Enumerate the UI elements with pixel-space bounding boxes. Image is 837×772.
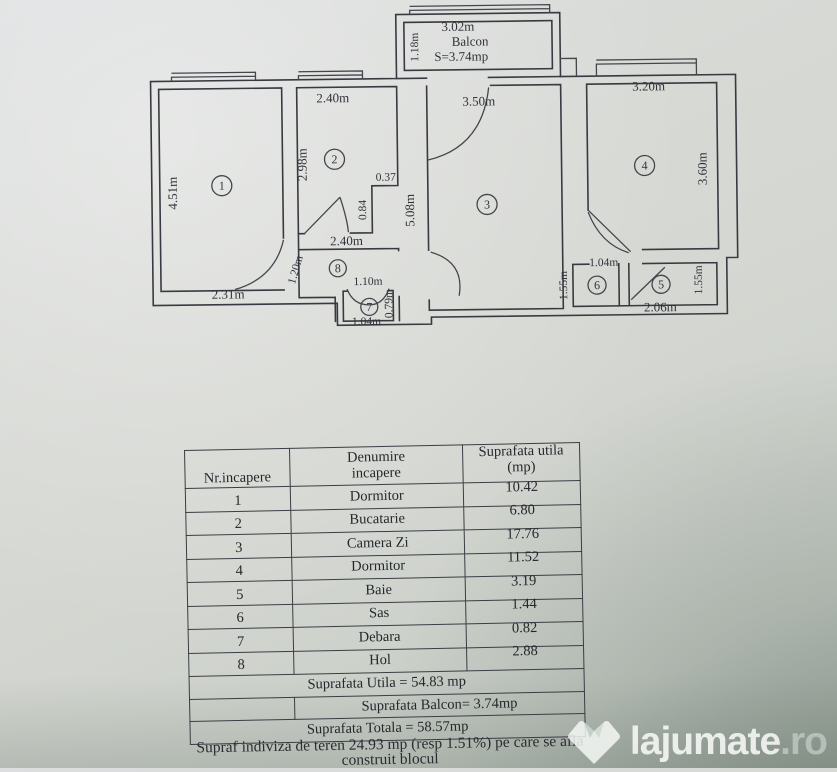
room4-door	[588, 210, 631, 254]
room-4-marker: 4	[634, 155, 654, 175]
cell-nr: 7	[188, 627, 293, 653]
room1-door-arc	[234, 240, 284, 290]
room4-window	[596, 59, 696, 76]
room2-width-label: 2.40m	[316, 90, 349, 105]
cell-name: Bucatarie	[290, 506, 464, 533]
cell-area: 2.88	[466, 645, 583, 671]
notch-height-label: 0.84	[357, 200, 369, 221]
hall-width-label: 2.40m	[330, 233, 363, 248]
svg-text:1: 1	[219, 179, 225, 193]
room-1-marker: 1	[212, 176, 232, 196]
balcony-side-stub	[560, 58, 576, 76]
hall-height-label: 1.20m	[286, 254, 306, 285]
room5-height-label: 1.55m	[693, 265, 705, 294]
room7-height-label: 0.79m	[383, 289, 395, 318]
cell-nr: 3	[186, 533, 291, 559]
header-area: Suprafata utila (mp)	[462, 443, 580, 483]
header-name-line2: incapere	[292, 464, 461, 483]
svg-text:3: 3	[484, 197, 490, 211]
cell-nr: 8	[189, 651, 294, 677]
cell-name: Dormitor	[290, 483, 464, 510]
cell-name: Baie	[292, 577, 466, 604]
room7-door-label: 1.10m	[353, 276, 382, 288]
watermark-tld: .ro	[780, 720, 827, 763]
balcony-area-label: S=3.74mp	[434, 48, 488, 64]
room4-height-label: 3.60m	[694, 152, 709, 185]
cell-name: Hol	[293, 647, 467, 674]
notch-width-label: 0.37	[376, 172, 397, 184]
room-7-marker: 7	[361, 298, 378, 315]
land-share-caption: Supraf indiviza de teren 24.93 mp (resp …	[172, 733, 608, 771]
room7-width-label: 1.04m	[352, 316, 381, 328]
cell-name: Dormitor	[291, 553, 465, 580]
area-table: Nr.incapere Denumire incapere Suprafata …	[184, 442, 586, 744]
cell-nr: 4	[187, 557, 292, 583]
balcony-depth-label: 1.18m	[409, 33, 421, 62]
watermark-brand: lajumate	[630, 720, 780, 763]
watermark-text: lajumate.ro	[630, 720, 827, 764]
header-nr: Nr.incapere	[185, 448, 290, 488]
cell-nr: 5	[187, 580, 292, 606]
svg-text:2: 2	[331, 152, 337, 166]
cell-name: Camera Zi	[291, 530, 465, 557]
header-area-line2: (mp)	[465, 459, 577, 477]
room5-width-label: 2.06m	[644, 299, 677, 314]
balcony-width-label: 3.02m	[441, 19, 474, 34]
room-2-marker: 2	[324, 149, 344, 169]
balcony-name-label: Balcon	[452, 33, 490, 48]
cell-nr: 6	[188, 604, 293, 630]
room3-width-label: 3.50m	[462, 93, 495, 108]
svg-text:4: 4	[642, 158, 648, 172]
floorplan-drawing: 1 2 3 4 5 6 7 8 3.02m	[0, 0, 837, 446]
svg-text:6: 6	[594, 278, 600, 292]
room6-height-label: 1.55m	[558, 271, 570, 300]
lajumate-watermark: lajumate.ro	[566, 718, 827, 766]
svg-text:5: 5	[658, 277, 664, 291]
room-5-marker: 5	[652, 275, 670, 293]
cell-nr: 1	[185, 486, 290, 512]
lajumate-heart-icon	[566, 718, 622, 766]
summary-empty-cell	[189, 697, 294, 722]
room-6-marker: 6	[588, 276, 606, 294]
room1-width-label: 2.31m	[212, 286, 245, 301]
svg-text:7: 7	[366, 300, 372, 314]
room2-walls	[297, 87, 399, 234]
svg-text:8: 8	[335, 261, 341, 275]
header-name: Denumire incapere	[289, 445, 463, 486]
top-wall-door-gap	[397, 77, 561, 79]
room3-height-label: 5.08m	[402, 194, 417, 227]
room2-height-label: 2.98m	[294, 148, 309, 181]
room-3-marker: 3	[477, 194, 497, 214]
cell-name: Sas	[292, 600, 466, 627]
room4-width-label: 3.20m	[632, 78, 665, 93]
hall-room3-door-arc	[431, 252, 460, 296]
cell-name: Debara	[293, 624, 467, 651]
room2-door	[304, 197, 348, 234]
room1-height-label: 4.51m	[165, 177, 180, 210]
room6-width-label: 1.04m	[589, 257, 618, 269]
cell-nr: 2	[186, 510, 291, 536]
room-8-marker: 8	[329, 260, 346, 277]
